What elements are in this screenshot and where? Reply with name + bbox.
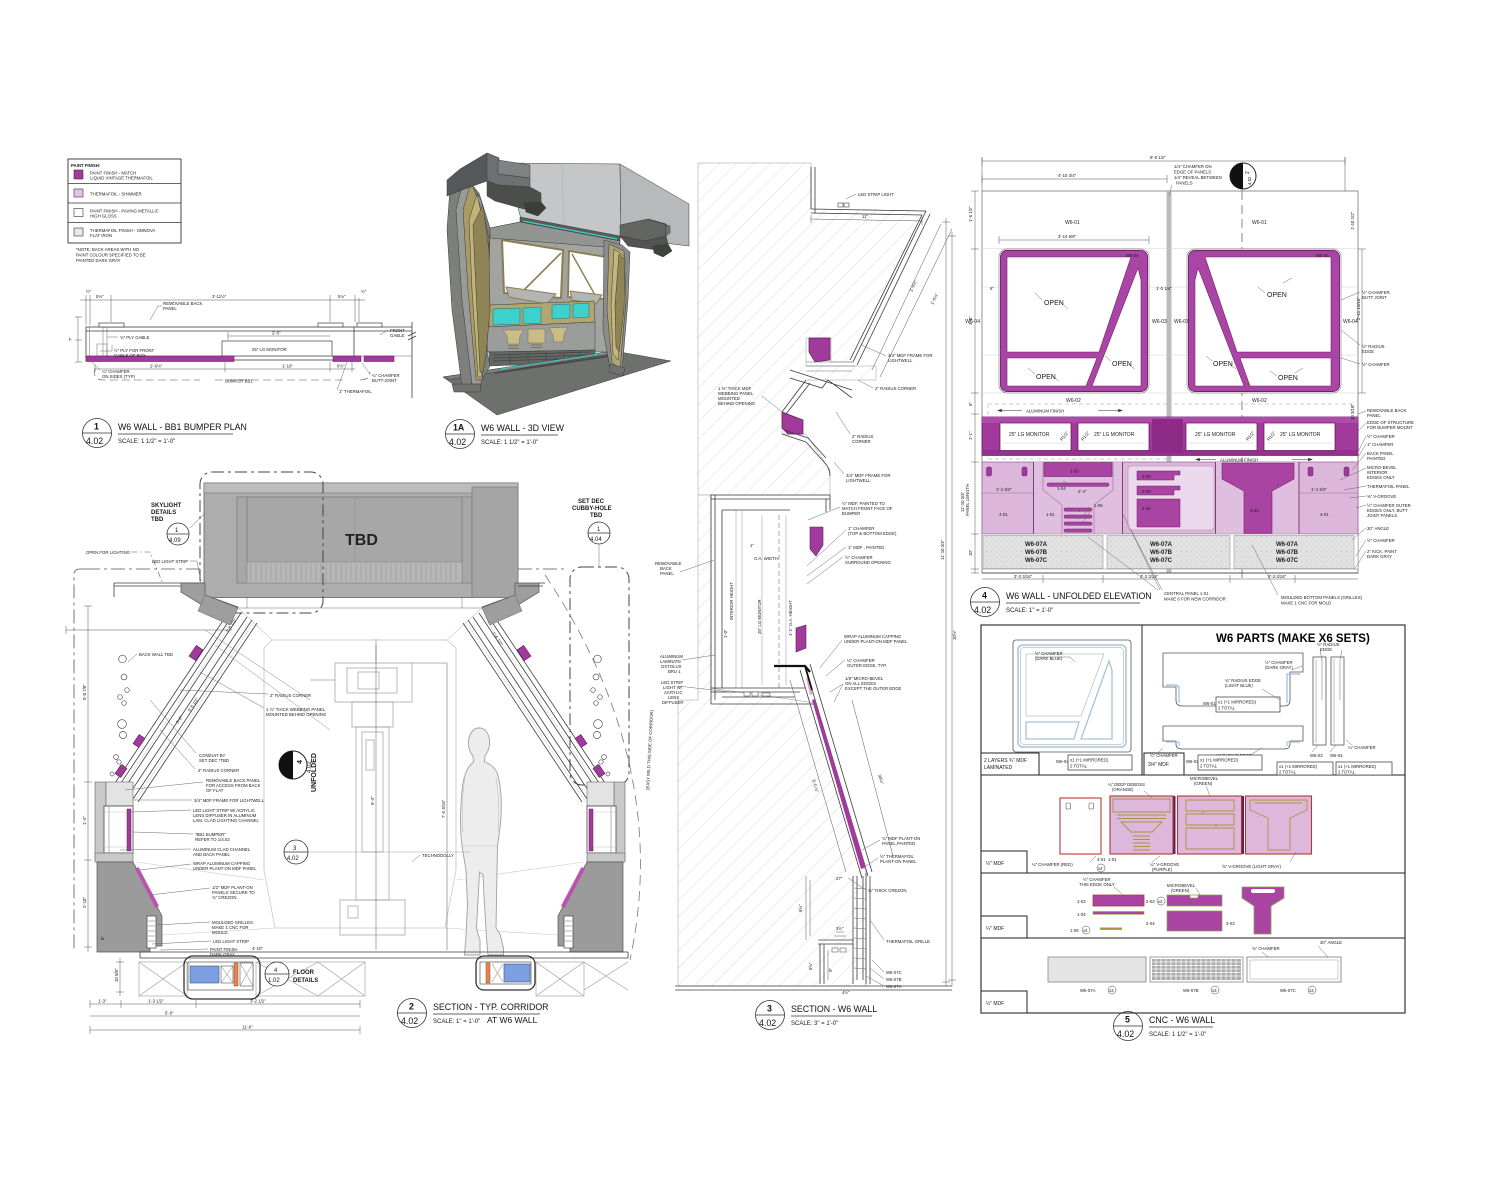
svg-text:1-01: 1-01 — [1108, 857, 1117, 862]
svg-text:UNDER PLANT-ON MDF PANEL: UNDER PLANT-ON MDF PANEL — [193, 866, 257, 871]
svg-text:1-03: 1-03 — [1070, 469, 1079, 474]
svg-text:LAMINATED: LAMINATED — [984, 765, 1013, 771]
svg-text:O.A. WIDTH: O.A. WIDTH — [754, 556, 778, 561]
svg-text:PAINT COLOUR SPECIFIED TO BE: PAINT COLOUR SPECIFIED TO BE — [76, 253, 146, 258]
svg-text:4-01: 4-01 — [999, 512, 1008, 517]
svg-text:EDGE: EDGE — [1362, 349, 1374, 354]
svg-text:THERMAFOIL GRILLE: THERMAFOIL GRILLE — [886, 939, 930, 944]
svg-text:¾" THICK CREZON: ¾" THICK CREZON — [868, 888, 906, 893]
svg-text:7'-9 3/16": 7'-9 3/16" — [441, 799, 446, 818]
svg-text:½" CHAMFER: ½" CHAMFER — [1367, 538, 1395, 543]
svg-text:2" RADIUS CORNER: 2" RADIUS CORNER — [198, 768, 239, 773]
svg-text:x2: x2 — [1158, 899, 1163, 904]
svg-text:6⅝": 6⅝" — [798, 904, 803, 912]
svg-text:FOR BUMPER MOUNT: FOR BUMPER MOUNT — [1367, 425, 1413, 430]
svg-text:2 LAYERS ¾" MDF: 2 LAYERS ¾" MDF — [984, 758, 1027, 764]
svg-text:¼" CHAMFER (RED): ¼" CHAMFER (RED) — [1032, 862, 1073, 867]
svg-text:W6-02: W6-02 — [1252, 398, 1267, 404]
svg-text:LIGHTWELL: LIGHTWELL — [846, 478, 871, 483]
svg-text:W6-07B: W6-07B — [1276, 550, 1299, 556]
svg-text:SET DEC: SET DEC — [578, 499, 605, 505]
svg-text:OUTER EDGE, TYP.: OUTER EDGE, TYP. — [847, 663, 887, 668]
svg-text:2-03: 2-03 — [1142, 474, 1151, 479]
svg-text:DARK GRAY: DARK GRAY — [210, 952, 235, 957]
svg-text:W6-03: W6-03 — [1310, 753, 1323, 758]
svg-text:OPEN: OPEN — [1112, 361, 1132, 368]
svg-text:W6-04: W6-04 — [1316, 253, 1329, 258]
svg-text:MOULD.: MOULD. — [212, 930, 229, 935]
svg-text:(GREEN): (GREEN) — [1171, 888, 1190, 893]
svg-text:REFER TO 1/4.02: REFER TO 1/4.02 — [195, 837, 230, 842]
svg-text:10 5/8": 10 5/8" — [114, 968, 119, 982]
svg-text:25" LG MONITOR: 25" LG MONITOR — [1195, 432, 1236, 438]
svg-text:1" MDF , PAINTED: 1" MDF , PAINTED — [848, 545, 884, 550]
svg-text:SCALE: 3" = 1'-0": SCALE: 3" = 1'-0" — [791, 1021, 838, 1027]
svg-text:EDGE: EDGE — [1320, 647, 1332, 652]
svg-text:1": 1" — [750, 543, 754, 548]
svg-text:W6-07C: W6-07C — [1276, 558, 1299, 564]
svg-text:ALUMINUM FINISH: ALUMINUM FINISH — [1026, 409, 1064, 414]
svg-text:4.04: 4.04 — [590, 537, 602, 543]
svg-text:OPEN FOR LIGHTING: OPEN FOR LIGHTING — [86, 550, 131, 555]
svg-text:PANEL LENGTH: PANEL LENGTH — [965, 484, 970, 516]
svg-text:25" LG MONITOR: 25" LG MONITOR — [757, 599, 762, 634]
svg-text:SCALE: 1" = 1'-0": SCALE: 1" = 1'-0" — [1006, 608, 1053, 614]
svg-text:THERMAFOIL - SHIMMER: THERMAFOIL - SHIMMER — [90, 192, 142, 197]
svg-text:(GREEN): (GREEN) — [1194, 781, 1213, 786]
svg-text:4.02: 4.02 — [401, 1016, 418, 1026]
svg-text:1/4" CHAMFER ON: 1/4" CHAMFER ON — [1174, 164, 1212, 169]
svg-text:4.02: 4.02 — [759, 1018, 776, 1028]
svg-text:OPEN: OPEN — [1044, 300, 1064, 307]
svg-text:*NOTE: BACK AREAS WITH NO: *NOTE: BACK AREAS WITH NO — [76, 247, 140, 252]
svg-text:MAKE 1 CNC FOR MOLD: MAKE 1 CNC FOR MOLD — [1281, 601, 1331, 606]
svg-text:7": 7" — [68, 337, 73, 341]
svg-text:⅝" V-GROOVE (LIGHT GRAY): ⅝" V-GROOVE (LIGHT GRAY) — [1222, 864, 1281, 869]
svg-text:SCALE: 1" = 1'-0": SCALE: 1" = 1'-0" — [433, 1019, 480, 1025]
svg-text:27": 27" — [836, 876, 843, 881]
svg-text:30° ANGLE: 30° ANGLE — [1367, 526, 1389, 531]
svg-text:6'-4": 6'-4" — [370, 796, 375, 805]
svg-text:UNFOLDED: UNFOLDED — [311, 753, 318, 792]
svg-text:2'-11 15/16": 2'-11 15/16" — [1356, 297, 1361, 320]
svg-text:x1 (+1 MIRRORED): x1 (+1 MIRRORED) — [1218, 700, 1257, 705]
svg-text:PANEL: PANEL — [1367, 413, 1381, 418]
svg-text:x1 (+1 MIRRORED): x1 (+1 MIRRORED) — [1070, 758, 1109, 763]
svg-text:W6 WALL - UNFOLDED ELEVATION: W6 WALL - UNFOLDED ELEVATION — [1006, 591, 1152, 601]
svg-text:THIS EDGE ONLY: THIS EDGE ONLY — [1079, 882, 1115, 887]
svg-text:TBD: TBD — [590, 513, 603, 519]
svg-text:LED LIGHT STRIP: LED LIGHT STRIP — [213, 939, 249, 944]
svg-text:1-04: 1-04 — [1077, 912, 1086, 917]
svg-text:1-04: 1-04 — [1057, 486, 1066, 491]
svg-text:3-03: 3-03 — [1226, 921, 1235, 926]
svg-text:3'-3 3/16": 3'-3 3/16" — [1014, 574, 1033, 579]
svg-text:1: 1 — [94, 422, 99, 432]
svg-text:½" CHAMFER: ½" CHAMFER — [1362, 362, 1390, 367]
svg-text:5⅛": 5⅛" — [338, 294, 346, 299]
svg-text:6": 6" — [968, 402, 973, 406]
svg-text:11'-10 3/4": 11'-10 3/4" — [940, 539, 945, 560]
svg-text:¾" CHAMFER: ¾" CHAMFER — [1252, 946, 1280, 951]
svg-text:W6-04: W6-04 — [1330, 753, 1343, 758]
svg-text:x3: x3 — [1212, 988, 1217, 993]
svg-text:3'-3 3/16": 3'-3 3/16" — [1268, 574, 1287, 579]
svg-text:1'-10 1/2": 1'-10 1/2" — [1350, 211, 1355, 230]
svg-text:11": 11" — [862, 214, 868, 219]
svg-text:11'-6": 11'-6" — [242, 1025, 253, 1030]
svg-text:2-03: 2-03 — [1146, 899, 1155, 904]
svg-text:W6-07B: W6-07B — [1183, 988, 1199, 993]
svg-text:4.02: 4.02 — [1247, 176, 1252, 185]
svg-text:PANEL,PAINTED: PANEL,PAINTED — [882, 841, 915, 846]
svg-text:¼" MDF: ¼" MDF — [986, 926, 1004, 932]
svg-text:4.02: 4.02 — [449, 437, 466, 447]
svg-text:W6-04: W6-04 — [1126, 253, 1139, 258]
svg-text:BUTT-JOINT: BUTT-JOINT — [372, 378, 397, 383]
svg-text:PAINTED DARK GRAY: PAINTED DARK GRAY — [76, 258, 121, 263]
svg-text:W6-02: W6-02 — [1066, 398, 1081, 404]
svg-text:1'-10": 1'-10" — [282, 364, 293, 369]
svg-text:5⅝": 5⅝" — [808, 962, 813, 970]
svg-text:4-01: 4-01 — [1097, 857, 1106, 862]
svg-text:3½": 3½" — [836, 926, 844, 931]
svg-text:1-05: 1-05 — [1070, 928, 1079, 933]
svg-text:BUMPER: BUMPER — [842, 511, 860, 516]
svg-text:BEHIND OPENING: BEHIND OPENING — [718, 401, 756, 406]
svg-text:W6-07B: W6-07B — [1025, 550, 1048, 556]
svg-text:1'-1": 1'-1" — [968, 431, 973, 440]
svg-text:½" CHAMFER: ½" CHAMFER — [1367, 434, 1395, 439]
svg-text:4: 4 — [982, 591, 987, 601]
svg-text:W6-01: W6-01 — [1203, 701, 1216, 706]
svg-text:1.02: 1.02 — [268, 978, 280, 984]
svg-text:SCALE: 1 1/2" = 1'-0": SCALE: 1 1/2" = 1'-0" — [481, 440, 538, 446]
svg-text:6⅛": 6⅛" — [337, 364, 345, 369]
svg-text:(DARK GRAY): (DARK GRAY) — [1265, 665, 1293, 670]
svg-text:5'-0 7/8": 5'-0 7/8" — [82, 684, 87, 700]
svg-text:EDGES ONLY: EDGES ONLY — [1367, 475, 1395, 480]
svg-text:1'-4 3/4": 1'-4 3/4" — [996, 487, 1012, 492]
svg-text:9'-9 1/2": 9'-9 1/2" — [1150, 155, 1166, 160]
svg-text:W6-02: W6-02 — [1186, 759, 1199, 764]
svg-text:1'-4 3/4": 1'-4 3/4" — [1311, 487, 1327, 492]
svg-text:½": ½" — [361, 289, 367, 294]
svg-text:W6-07A: W6-07A — [1025, 542, 1048, 548]
svg-text:6": 6" — [100, 936, 105, 940]
svg-text:10": 10" — [968, 549, 973, 556]
svg-text:3/4" MDF FRAME FOR LIGHTWELL: 3/4" MDF FRAME FOR LIGHTWELL — [194, 798, 265, 803]
svg-text:(ORANGE): (ORANGE) — [1112, 787, 1134, 792]
svg-text:½" MDF: ½" MDF — [986, 1000, 1004, 1007]
svg-text:4'-10 3/4": 4'-10 3/4" — [1058, 173, 1077, 178]
svg-text:3-03: 3-03 — [1250, 508, 1259, 513]
svg-text:EDGE OF PANELS: EDGE OF PANELS — [1174, 170, 1211, 175]
svg-text:x1 (+1 MIRRORED): x1 (+1 MIRRORED) — [1279, 764, 1318, 769]
svg-text:MOULDED BOTTOM PANELS (GRILLES: MOULDED BOTTOM PANELS (GRILLES) — [1281, 595, 1363, 600]
svg-text:25" LG MONITOR: 25" LG MONITOR — [252, 347, 287, 352]
svg-text:2 TOTAL: 2 TOTAL — [1218, 706, 1236, 711]
svg-text:4: 4 — [297, 760, 304, 764]
svg-text:ON SIDES (TYP): ON SIDES (TYP) — [102, 374, 136, 379]
svg-text:3'-11½": 3'-11½" — [212, 294, 227, 299]
svg-text:6": 6" — [990, 286, 994, 291]
svg-text:CORNER: CORNER — [852, 439, 871, 444]
svg-text:1A: 1A — [453, 423, 465, 433]
svg-text:W6 PARTS (MAKE X6 SETS): W6 PARTS (MAKE X6 SETS) — [1216, 633, 1370, 645]
svg-text:LAM. CLAD LIGHTING CHANNEL: LAM. CLAD LIGHTING CHANNEL — [193, 818, 260, 823]
svg-text:(PURPLE): (PURPLE) — [1152, 867, 1173, 872]
svg-text:2 TOTAL: 2 TOTAL — [1070, 764, 1088, 769]
svg-text:INTERIOR HEIGHT: INTERIOR HEIGHT — [729, 582, 734, 620]
svg-text:W6-01: W6-01 — [1065, 220, 1080, 226]
svg-text:JOINT PANELS.: JOINT PANELS. — [1367, 513, 1398, 518]
svg-text:10⅝": 10⅝" — [952, 630, 957, 640]
svg-text:OPEN: OPEN — [1036, 374, 1056, 381]
svg-text:4.02: 4.02 — [974, 605, 991, 615]
svg-text:x4: x4 — [1083, 928, 1088, 933]
svg-text:MAKE 6 FOR NEW CORRIDOR: MAKE 6 FOR NEW CORRIDOR — [1164, 597, 1226, 602]
svg-text:2'-4": 2'-4" — [1078, 489, 1087, 494]
svg-text:THERMAFOIL PANEL: THERMAFOIL PANEL — [1367, 484, 1410, 489]
svg-text:1" CHAMFER: 1" CHAMFER — [1367, 442, 1393, 447]
svg-text:2-03: 2-03 — [1142, 489, 1151, 494]
svg-text:4.02: 4.02 — [1117, 1029, 1134, 1039]
svg-text:4'-10": 4'-10" — [252, 946, 263, 951]
svg-text:SURROUND OPENING: SURROUND OPENING — [845, 560, 891, 565]
svg-text:(LIGHT BLUE): (LIGHT BLUE) — [1225, 683, 1253, 688]
svg-text:LED STRIP LIGHT: LED STRIP LIGHT — [858, 192, 894, 197]
svg-text:x1 (+1 MIRRORED): x1 (+1 MIRRORED) — [1200, 758, 1239, 763]
svg-text:LED LIGHT STRIP: LED LIGHT STRIP — [152, 559, 188, 564]
svg-text:PAINTED: PAINTED — [1367, 456, 1385, 461]
svg-text:TBD: TBD — [345, 532, 378, 549]
svg-text:CENTRAL PANEL 1-01: CENTRAL PANEL 1-01 — [1164, 591, 1209, 596]
svg-text:W6-07C: W6-07C — [1150, 558, 1173, 564]
svg-text:EXCEPT THE OUTER EDGE: EXCEPT THE OUTER EDGE — [845, 686, 902, 691]
svg-text:5⅛": 5⅛" — [96, 294, 104, 299]
svg-text:x1 (+1 MIRRORED): x1 (+1 MIRRORED) — [1338, 764, 1377, 769]
svg-text:PLANT-ON PANEL: PLANT-ON PANEL — [880, 859, 917, 864]
svg-text:1'-3": 1'-3" — [98, 999, 107, 1004]
svg-text:BUTT JOINT: BUTT JOINT — [1362, 295, 1387, 300]
svg-text:4-01: 4-01 — [1320, 512, 1329, 517]
svg-text:UNDER PLANT-ON MDF PANEL: UNDER PLANT-ON MDF PANEL — [844, 639, 908, 644]
svg-text:W6-04: W6-04 — [1056, 759, 1069, 764]
svg-text:DETAILS: DETAILS — [293, 978, 318, 984]
svg-text:GABLE OF BOX: GABLE OF BOX — [114, 353, 146, 358]
svg-text:½": ½" — [86, 289, 92, 294]
svg-text:25" LG MONITOR: 25" LG MONITOR — [1094, 432, 1135, 438]
svg-text:LIGHTWELL: LIGHTWELL — [888, 358, 913, 363]
svg-text:2-04: 2-04 — [1142, 506, 1151, 511]
svg-text:(TOP & BOTTOM EDGE): (TOP & BOTTOM EDGE) — [848, 531, 897, 536]
svg-text:2 TOTAL: 2 TOTAL — [1200, 764, 1218, 769]
svg-text:SKYLIGHT: SKYLIGHT — [151, 503, 182, 509]
svg-text:LIQUID VINTAGE THERMAFOIL: LIQUID VINTAGE THERMAFOIL — [90, 176, 153, 181]
svg-text:CUBBY-HOLE: CUBBY-HOLE — [572, 506, 612, 512]
svg-text:25" LG MONITOR: 25" LG MONITOR — [1009, 432, 1050, 438]
svg-text:4½": 4½" — [842, 990, 850, 995]
svg-text:SET DEC *TBD: SET DEC *TBD — [199, 758, 229, 763]
svg-text:SCALE: 1 1/2" = 1'-0": SCALE: 1 1/2" = 1'-0" — [118, 439, 175, 445]
svg-text:W6-07C: W6-07C — [1025, 558, 1048, 564]
svg-text:HIGH GLOSS: HIGH GLOSS — [90, 214, 117, 219]
svg-text:MOUNTED BEHIND OPENING: MOUNTED BEHIND OPENING — [266, 712, 327, 717]
svg-text:DETAILS: DETAILS — [151, 510, 176, 516]
svg-text:2 TOTAL: 2 TOTAL — [1338, 770, 1356, 775]
svg-text:PAINT FINISH:: PAINT FINISH: — [71, 163, 101, 168]
svg-text:AT W6 WALL: AT W6 WALL — [487, 1015, 538, 1025]
svg-text:CNC - W6 WALL: CNC - W6 WALL — [1149, 1015, 1215, 1025]
svg-text:x3: x3 — [1309, 988, 1314, 993]
svg-text:2: 2 — [409, 1002, 414, 1012]
svg-text:W6-01: W6-01 — [1252, 220, 1267, 226]
svg-text:SCALE: 1 1/2" = 1'-0": SCALE: 1 1/2" = 1'-0" — [1149, 1032, 1206, 1038]
svg-text:1-05: 1-05 — [1094, 503, 1103, 508]
svg-text:1'-1" O.A. HEIGHT: 1'-1" O.A. HEIGHT — [788, 600, 793, 636]
svg-text:W6 WALL - 3D VIEW: W6 WALL - 3D VIEW — [481, 423, 565, 433]
svg-text:OPEN: OPEN — [1267, 292, 1287, 299]
svg-text:1'-6 1/2": 1'-6 1/2" — [968, 206, 973, 222]
svg-text:4.09: 4.09 — [169, 538, 181, 544]
svg-text:2" RADIUS CORNER: 2" RADIUS CORNER — [875, 386, 916, 391]
svg-text:PANEL: PANEL — [163, 306, 177, 311]
svg-text:2'-0": 2'-0" — [272, 331, 281, 336]
svg-text:3'-10 5/8": 3'-10 5/8" — [1058, 234, 1077, 239]
svg-text:½" MDF: ½" MDF — [986, 860, 1004, 867]
svg-text:W6-07C: W6-07C — [1280, 988, 1296, 993]
svg-text:AND BACK PANEL: AND BACK PANEL — [193, 852, 231, 857]
svg-text:W6-07B: W6-07B — [886, 977, 902, 982]
svg-text:OPEN: OPEN — [1278, 375, 1298, 382]
svg-text:DARK GRAY: DARK GRAY — [1367, 554, 1392, 559]
svg-text:1/4" REVEAL BETWEEN: 1/4" REVEAL BETWEEN — [1174, 175, 1222, 180]
svg-text:OPEN: OPEN — [1213, 361, 1233, 368]
svg-text:W6-07A: W6-07A — [1150, 542, 1173, 548]
svg-text:10 1/16": 10 1/16" — [1350, 404, 1355, 420]
svg-text:1'-3 1/2": 1'-3 1/2" — [148, 999, 164, 1004]
svg-text:DIFFUSER: DIFFUSER — [662, 700, 684, 705]
svg-text:½" CHAMFER: ½" CHAMFER — [1150, 753, 1178, 758]
svg-text:2'-10": 2'-10" — [82, 897, 87, 908]
svg-text:2" RADIUS CORNER: 2" RADIUS CORNER — [270, 693, 311, 698]
svg-text:5: 5 — [1125, 1015, 1130, 1025]
svg-text:TECHNODOLLY: TECHNODOLLY — [422, 853, 454, 858]
svg-text:2-04: 2-04 — [1146, 921, 1155, 926]
svg-text:SECTION - W6 WALL: SECTION - W6 WALL — [791, 1004, 877, 1014]
svg-text:W6-07A: W6-07A — [1080, 988, 1096, 993]
svg-text:(DARK BLUE): (DARK BLUE) — [1035, 656, 1063, 661]
svg-text:2'-6⅛": 2'-6⅛" — [150, 364, 163, 369]
svg-text:W6-07B: W6-07B — [1150, 550, 1173, 556]
svg-text:¼" CHAMFER: ¼" CHAMFER — [1348, 745, 1376, 750]
svg-text:⅜" V-GROOVE: ⅜" V-GROOVE — [1367, 494, 1396, 499]
svg-text:W6-03: W6-03 — [1152, 319, 1167, 325]
svg-text:OF FLAT: OF FLAT — [206, 788, 224, 793]
svg-text:1-01: 1-01 — [1046, 512, 1055, 517]
svg-text:2 TOTAL: 2 TOTAL — [1279, 770, 1297, 775]
svg-text:x2: x2 — [1098, 866, 1103, 871]
svg-text:3/4" MDF: 3/4" MDF — [1148, 762, 1169, 768]
svg-text:W6-07C: W6-07C — [886, 970, 902, 975]
svg-text:5": 5" — [828, 968, 833, 972]
svg-text:W6-03: W6-03 — [1174, 319, 1189, 325]
svg-text:1'-4": 1'-4" — [82, 816, 87, 825]
svg-text:W6 WALL - BB1 BUMPER PLAN: W6 WALL - BB1 BUMPER PLAN — [118, 422, 247, 432]
svg-text:3: 3 — [767, 1004, 772, 1014]
svg-text:W6-07A: W6-07A — [886, 984, 902, 989]
svg-text:BACK WALL TBD: BACK WALL TBD — [139, 652, 173, 657]
svg-text:1" THERMAFOIL: 1" THERMAFOIL — [339, 389, 372, 394]
svg-text:3'-2 1/2": 3'-2 1/2" — [250, 999, 266, 1004]
svg-text:x3: x3 — [1109, 988, 1114, 993]
svg-text:4.02: 4.02 — [287, 856, 299, 862]
svg-text:¾" CREZON: ¾" CREZON — [212, 895, 236, 900]
svg-text:PANELS: PANELS — [1176, 181, 1193, 186]
svg-text:4.02: 4.02 — [86, 436, 103, 446]
svg-text:1'-0 1/4": 1'-0 1/4" — [1156, 286, 1172, 291]
svg-text:SECTION - TYP. CORRIDOR: SECTION - TYP. CORRIDOR — [433, 1002, 549, 1012]
svg-text:BRU 1: BRU 1 — [668, 669, 681, 674]
svg-text:PANEL: PANEL — [660, 571, 674, 576]
svg-text:FLAT IRON: FLAT IRON — [90, 233, 112, 238]
svg-text:BUMPER BB1: BUMPER BB1 — [225, 379, 253, 384]
svg-text:1'-0": 1'-0" — [723, 629, 728, 638]
svg-text:2: 2 — [1245, 171, 1251, 174]
svg-text:TBD: TBD — [151, 517, 164, 523]
svg-text:GABLE: GABLE — [390, 333, 404, 338]
svg-text:¾" PLY GABLE: ¾" PLY GABLE — [120, 335, 150, 340]
svg-text:3'-8": 3'-8" — [968, 316, 973, 325]
svg-text:5'-9": 5'-9" — [165, 1011, 174, 1016]
svg-text:1-03: 1-03 — [1077, 899, 1086, 904]
svg-text:25" LG MONITOR: 25" LG MONITOR — [1280, 432, 1321, 438]
svg-text:FLOOR: FLOOR — [293, 970, 315, 976]
svg-text:W6-07A: W6-07A — [1276, 542, 1299, 548]
svg-text:30° ANGLE: 30° ANGLE — [1320, 940, 1342, 945]
